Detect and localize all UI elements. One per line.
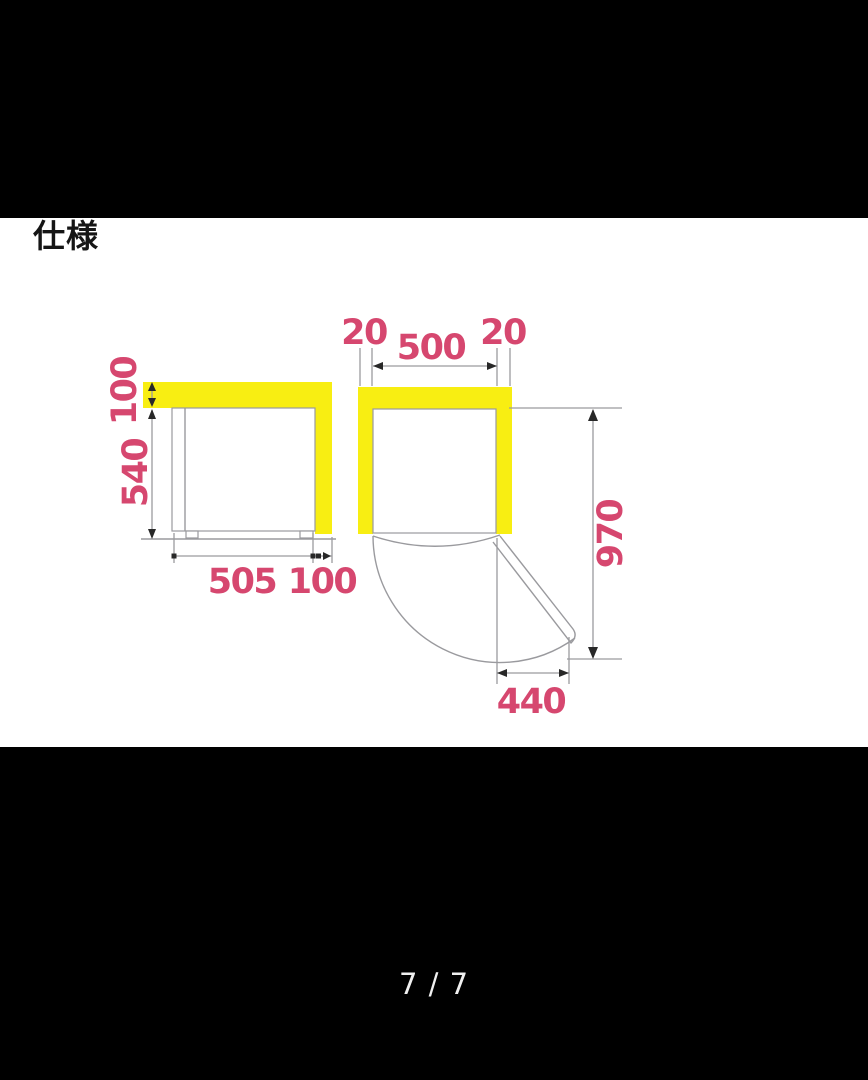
top-body-outline [373, 409, 496, 533]
door-swing-arc [373, 536, 575, 663]
side-rear-clearance-label: 100 [288, 562, 357, 602]
top-left-clearance-label: 20 [341, 313, 387, 353]
top-rear-clearance-zone [358, 387, 512, 409]
spec-image[interactable]: 仕様 100 [0, 218, 868, 747]
top-right-clearance-label: 20 [480, 313, 526, 353]
top-width-label: 500 [397, 328, 466, 368]
top-open-depth-label: 970 [591, 500, 631, 569]
side-view: 100 540 [105, 357, 356, 602]
side-depth-label: 505 [208, 562, 277, 602]
top-view: 20 500 20 970 [341, 313, 631, 722]
top-door-open-width-label: 440 [497, 682, 566, 722]
side-height-label: 540 [116, 439, 156, 508]
top-left-clearance-zone [358, 387, 373, 534]
side-rear-foot [300, 531, 313, 538]
side-rear-clearance-zone [315, 382, 332, 534]
page-indicator: 7 / 7 [0, 969, 868, 999]
side-front-foot [186, 531, 198, 538]
door-open-outline [493, 536, 575, 643]
side-top-clearance-zone [143, 382, 332, 408]
top-right-clearance-zone [496, 387, 512, 534]
spec-diagram: 100 540 [0, 218, 868, 747]
door-closed-face [373, 535, 500, 546]
side-body-outline [172, 408, 315, 531]
side-top-clearance-label: 100 [105, 357, 145, 426]
